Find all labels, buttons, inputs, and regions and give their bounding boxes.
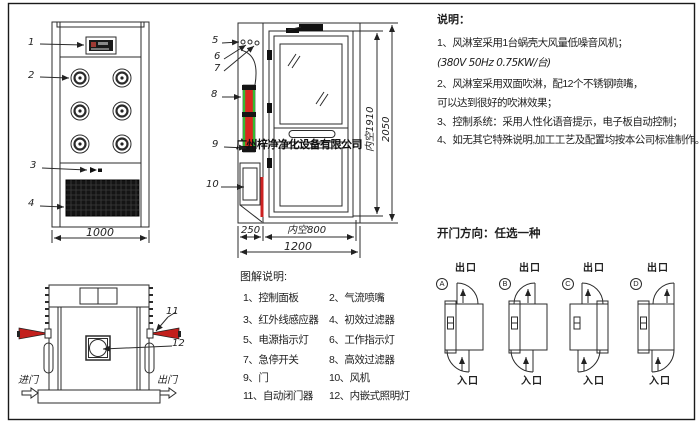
callout-8: 8 — [211, 90, 217, 100]
door-option-d — [631, 279, 675, 373]
callout-6: 6 — [214, 52, 220, 62]
option-letter-c: C — [563, 280, 573, 288]
callout-3: 3 — [30, 161, 36, 171]
option-letter-b: B — [500, 280, 510, 288]
note-line: 1、风淋室采用1台蜗壳大风量低噪音风机； — [437, 38, 628, 49]
enter-door-label: 进门 — [18, 376, 38, 386]
dim-inner-1910: 内空1910 — [366, 107, 376, 152]
legend-item: 7、急停开关 — [243, 355, 298, 366]
note-line: 3、控制系统：采用人性化语音提示，电子板自动控制； — [437, 117, 682, 128]
fan-box — [240, 163, 264, 217]
enter-label: 入口 — [649, 377, 671, 387]
exit-label: 出口 — [455, 264, 477, 274]
switch — [90, 167, 97, 173]
legend-item: 11、自动闭门器 — [243, 391, 313, 402]
enter-label: 入口 — [457, 377, 479, 387]
door-option-a — [437, 279, 484, 373]
exit-label: 出口 — [519, 264, 541, 274]
front-view-drawing — [40, 22, 149, 243]
legend-item: 5、电源指示灯 — [243, 335, 308, 346]
dim-2050: 2050 — [382, 117, 392, 142]
callout-7: 7 — [214, 64, 220, 74]
callout-1: 1 — [28, 38, 34, 48]
note-line: (380V 50Hz 0.75KW/台) — [437, 58, 551, 69]
legend-item: 8、高效过滤器 — [329, 355, 394, 366]
legend-item: 2、气流喷嘴 — [329, 293, 384, 304]
exhaust-grille — [66, 180, 139, 216]
exit-door-label: 出门 — [157, 376, 177, 386]
callout-12: 12 — [172, 339, 185, 349]
callout-11: 11 — [166, 307, 179, 317]
enter-arrow — [22, 388, 38, 398]
legend-item: 4、初效过滤器 — [329, 315, 394, 326]
note-line: 可以达到很好的吹淋效果； — [437, 98, 557, 109]
dim-1000: 1000 — [86, 227, 114, 238]
notes-title: 说明： — [437, 15, 470, 26]
legend-item: 12、内嵌式照明灯 — [329, 391, 410, 402]
callout-4: 4 — [28, 199, 34, 209]
door-options-drawing — [437, 279, 675, 373]
callout-5: 5 — [212, 36, 218, 46]
legend-item: 9、门 — [243, 373, 268, 384]
ceiling-light — [86, 336, 110, 360]
option-letter-a: A — [437, 280, 447, 288]
callout-9: 9 — [212, 140, 218, 150]
exit-label: 出口 — [583, 264, 605, 274]
exit-label: 出口 — [647, 264, 669, 274]
dim-1200: 1200 — [284, 241, 312, 252]
note-line: 4、如无其它特殊说明,加工工艺及配置均按本公司标准制作。 — [437, 135, 700, 146]
door-glass — [280, 44, 342, 124]
legend-item: 3、红外线感应器 — [243, 315, 318, 326]
callout-10: 10 — [206, 180, 219, 190]
nozzles — [71, 69, 131, 153]
door-closer — [286, 24, 323, 33]
legend-title: 图解说明: — [240, 272, 287, 283]
note-line: 2、风淋室采用双面吹淋，配12个不锈钢喷嘴， — [437, 79, 643, 90]
enter-label: 入口 — [521, 377, 543, 387]
option-letter-d: D — [631, 280, 641, 288]
callout-2: 2 — [28, 71, 34, 81]
watermark: 广州梓净净化设备有限公司 — [236, 140, 362, 151]
drawing-sheet: 1 2 3 4 1000 5 6 7 8 9 10 250 内空800 1200… — [0, 0, 700, 427]
door-direction-title: 开门方向：任选一种 — [437, 229, 541, 241]
enter-label: 入口 — [583, 377, 605, 387]
door-handle — [289, 131, 335, 138]
door-option-c — [563, 279, 609, 373]
legend-item: 10、风机 — [329, 373, 370, 384]
dim-250: 250 — [241, 226, 260, 236]
door-option-b — [500, 279, 548, 373]
auto-door-closer — [17, 328, 181, 339]
exit-arrow — [160, 388, 176, 398]
dim-inner-800: 内空800 — [287, 226, 326, 236]
legend-item: 1、控制面板 — [243, 293, 298, 304]
legend-item: 6、工作指示灯 — [329, 335, 394, 346]
